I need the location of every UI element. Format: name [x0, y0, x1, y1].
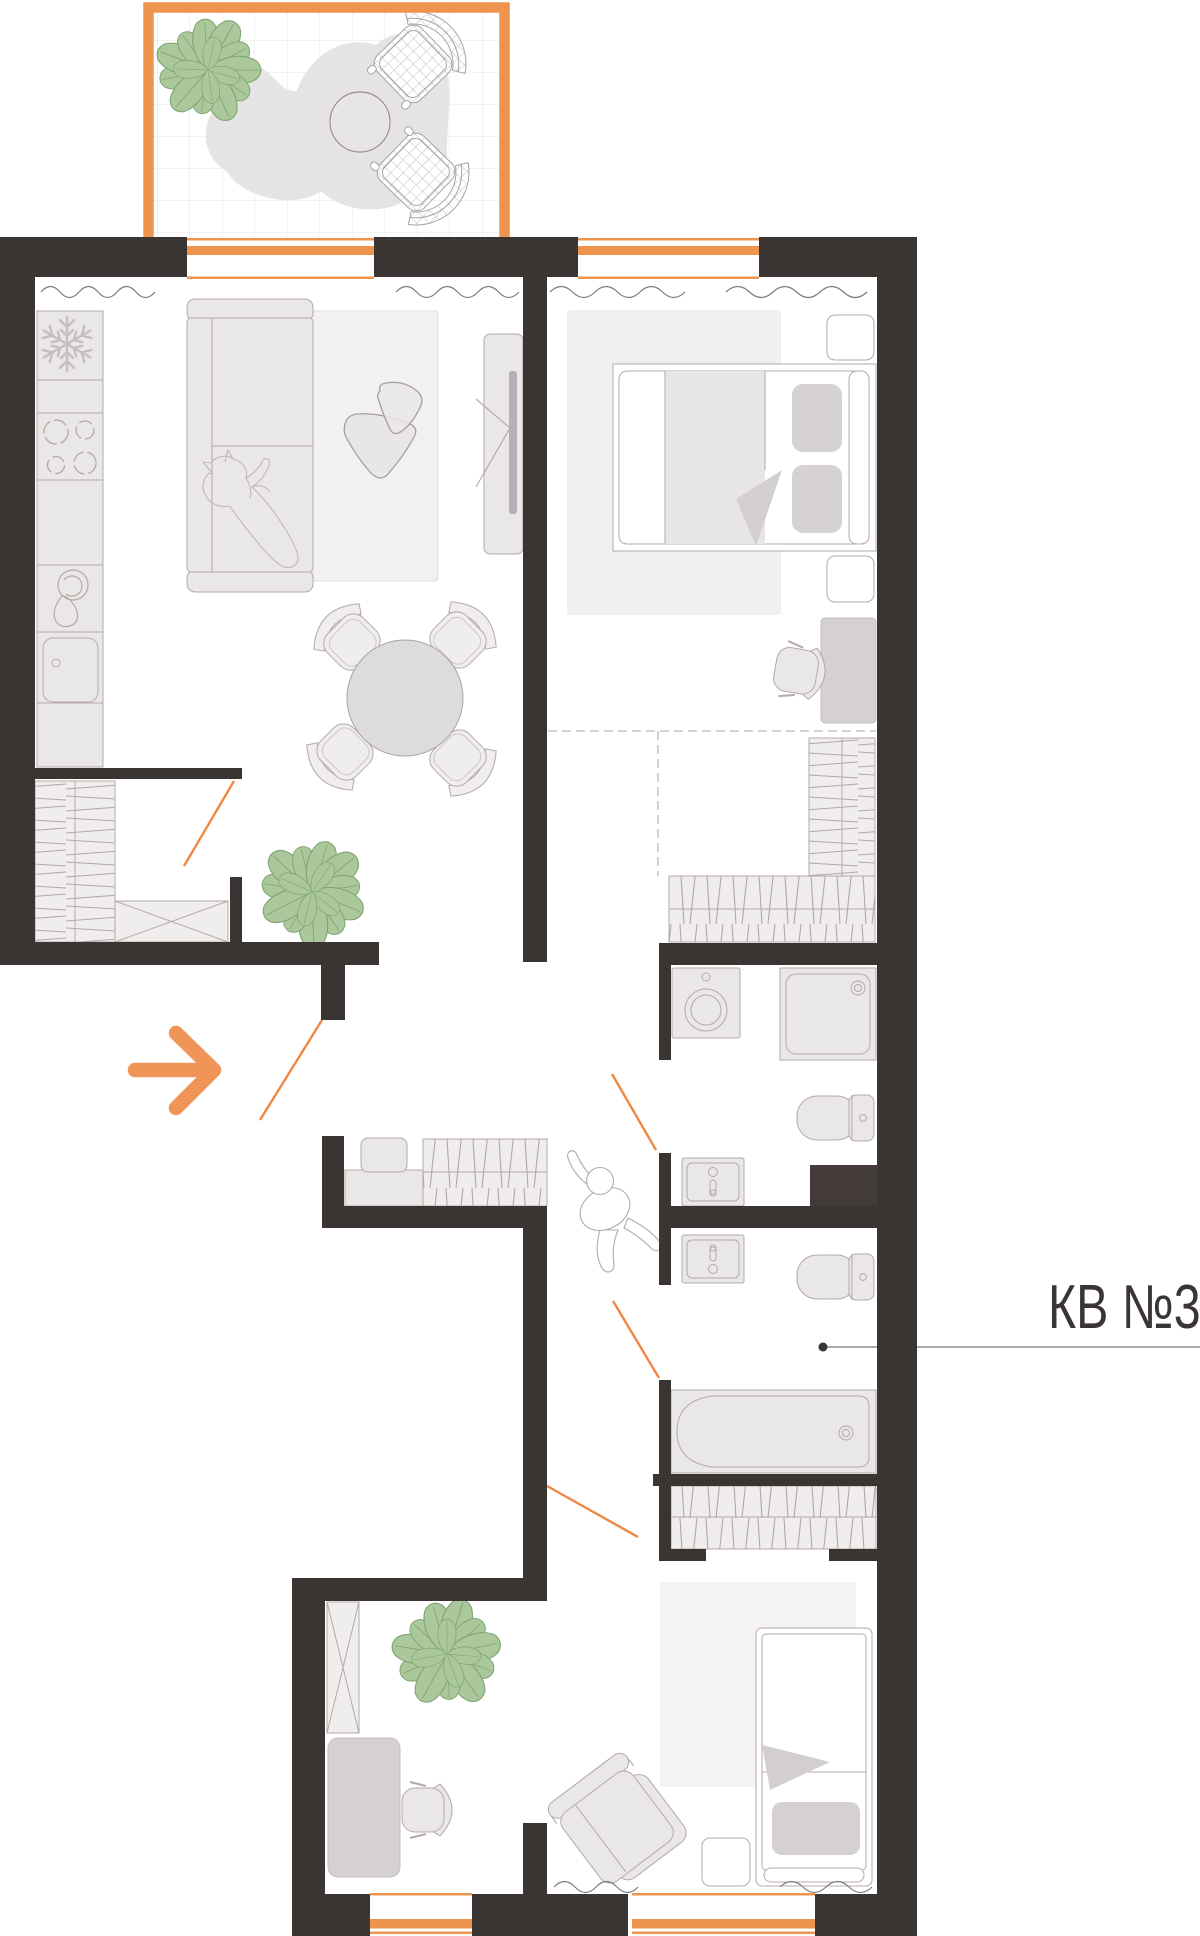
svg-text:КВ №3: КВ №3 — [1048, 1272, 1200, 1341]
